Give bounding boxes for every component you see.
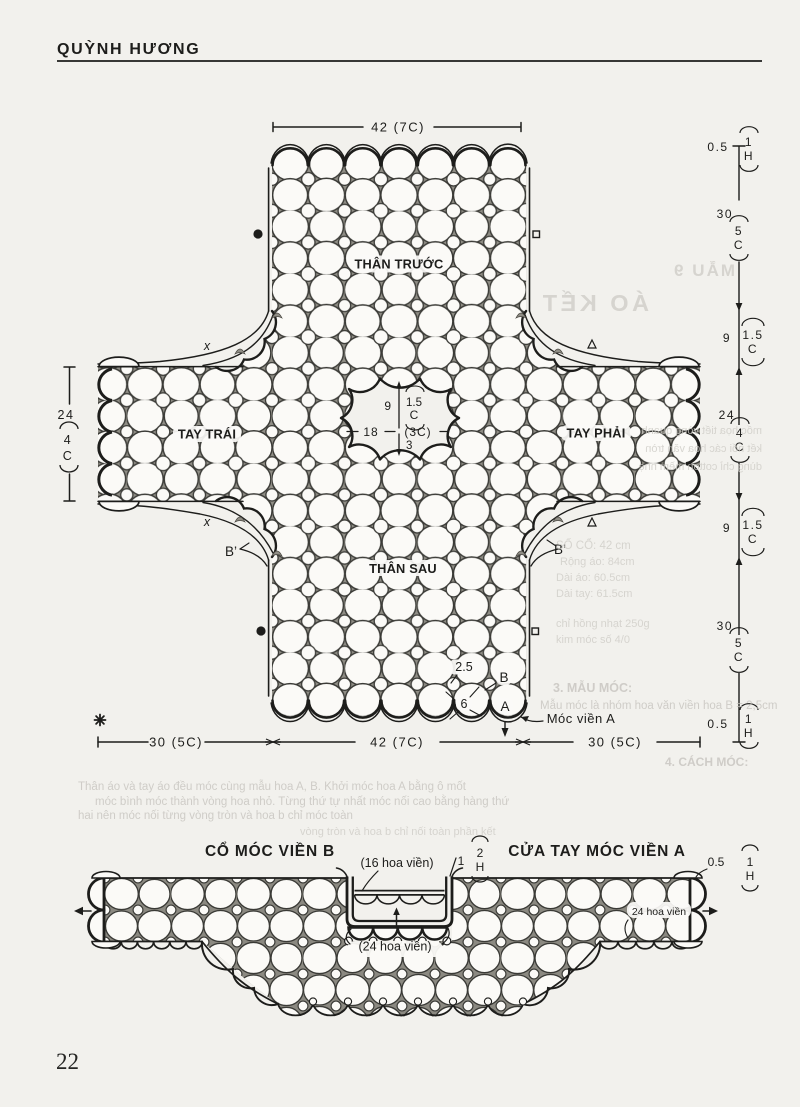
svg-text:H: H bbox=[746, 869, 755, 883]
svg-text:0.5: 0.5 bbox=[708, 855, 725, 869]
svg-text:H: H bbox=[744, 149, 754, 163]
svg-text:2: 2 bbox=[477, 846, 484, 860]
svg-text:(16 hoa viền): (16 hoa viền) bbox=[361, 856, 434, 870]
svg-text:Rộng áo: 84cm: Rộng áo: 84cm bbox=[560, 556, 635, 568]
svg-text:42 (7C): 42 (7C) bbox=[371, 120, 425, 135]
svg-text:1.5: 1.5 bbox=[742, 518, 763, 532]
svg-text:1: 1 bbox=[747, 855, 754, 869]
svg-text:(24 hoa viền): (24 hoa viền) bbox=[359, 940, 432, 954]
svg-text:9: 9 bbox=[723, 521, 731, 535]
svg-text:1: 1 bbox=[458, 854, 465, 868]
svg-text:(3C): (3C) bbox=[404, 425, 431, 439]
svg-text:B: B bbox=[499, 670, 508, 685]
svg-text:THÂN TRƯỚC: THÂN TRƯỚC bbox=[355, 257, 444, 272]
svg-text:dùng chỉ cotton mềm nhẹ: dùng chỉ cotton mềm nhẹ bbox=[638, 461, 762, 473]
svg-text:0.5: 0.5 bbox=[707, 140, 728, 154]
svg-text:1: 1 bbox=[745, 712, 753, 726]
svg-text:ÁO KẾT: ÁO KẾT bbox=[539, 289, 649, 316]
svg-text:mốc họa tiết vòng quanh: mốc họa tiết vòng quanh bbox=[642, 425, 762, 437]
svg-text:24: 24 bbox=[58, 408, 75, 422]
svg-text:42 (7C): 42 (7C) bbox=[370, 735, 424, 750]
svg-text:kết nối các hoa văn tròn: kết nối các hoa văn tròn bbox=[645, 443, 762, 455]
svg-text:Móc viền A: Móc viền A bbox=[547, 711, 616, 726]
svg-text:SỐ CỔ: 42 cm: SỐ CỔ: 42 cm bbox=[556, 538, 631, 552]
svg-text:9: 9 bbox=[723, 331, 731, 345]
svg-text:Dài tay: 61.5cm: Dài tay: 61.5cm bbox=[556, 588, 632, 600]
svg-text:C: C bbox=[748, 342, 758, 356]
svg-text:móc bình móc thành vòng hoa nh: móc bình móc thành vòng hoa nhỏ. Từng th… bbox=[95, 795, 509, 808]
svg-text:hai nên móc nối từng vòng tròn: hai nên móc nối từng vòng tròn và hoa b … bbox=[78, 810, 353, 822]
svg-text:18: 18 bbox=[363, 425, 378, 439]
svg-text:Thân áo và tay áo đều móc cùng: Thân áo và tay áo đều móc cùng mẫu hoa A… bbox=[78, 780, 467, 793]
svg-text:9: 9 bbox=[384, 399, 391, 413]
svg-text:24 hoa viền: 24 hoa viền bbox=[632, 906, 686, 918]
svg-text:A: A bbox=[500, 699, 509, 714]
svg-text:H: H bbox=[744, 726, 754, 740]
svg-text:4. CÁCH MÓC:: 4. CÁCH MÓC: bbox=[665, 754, 748, 769]
svg-text:C: C bbox=[410, 408, 419, 422]
svg-text:2.5: 2.5 bbox=[455, 660, 472, 674]
svg-text:CỬA TAY MÓC VIỀN A: CỬA TAY MÓC VIỀN A bbox=[508, 842, 685, 860]
svg-text:x: x bbox=[203, 339, 211, 353]
svg-text:B’: B’ bbox=[225, 544, 237, 559]
svg-text:vòng tròn và hoa b chỉ nối toà: vòng tròn và hoa b chỉ nối toàn phần kết bbox=[300, 826, 496, 838]
svg-text:TAY TRÁI: TAY TRÁI bbox=[178, 427, 236, 442]
svg-text:4: 4 bbox=[64, 433, 72, 447]
svg-text:TAY PHẢI: TAY PHẢI bbox=[567, 426, 626, 441]
svg-text:1: 1 bbox=[745, 135, 753, 149]
svg-text:0.5: 0.5 bbox=[707, 717, 728, 731]
svg-text:Dài áo: 60.5cm: Dài áo: 60.5cm bbox=[556, 572, 630, 584]
svg-text:MẪU 9: MẪU 9 bbox=[672, 261, 735, 280]
svg-text:H: H bbox=[476, 860, 485, 874]
svg-text:C: C bbox=[734, 650, 744, 664]
svg-text:QUỲNH HƯƠNG: QUỲNH HƯƠNG bbox=[57, 39, 200, 58]
svg-text:Mẫu móc là nhóm hoa văn viền h: Mẫu móc là nhóm hoa văn viền hoa B = 2,5… bbox=[540, 699, 777, 712]
svg-text:x: x bbox=[203, 515, 211, 529]
svg-text:C: C bbox=[748, 532, 758, 546]
svg-text:kim móc số 4/0: kim móc số 4/0 bbox=[556, 634, 630, 646]
svg-text:1.5: 1.5 bbox=[742, 328, 763, 342]
svg-text:5: 5 bbox=[735, 636, 743, 650]
svg-text:3: 3 bbox=[406, 440, 412, 452]
svg-text:chỉ hồng nhạt 250g: chỉ hồng nhạt 250g bbox=[556, 618, 650, 630]
svg-text:THÂN SAU: THÂN SAU bbox=[369, 561, 437, 576]
svg-text:6: 6 bbox=[461, 697, 468, 711]
svg-text:C: C bbox=[63, 449, 74, 463]
svg-text:CỔ MÓC VIỀN B: CỔ MÓC VIỀN B bbox=[205, 842, 335, 860]
svg-text:3. MẪU MÓC:: 3. MẪU MÓC: bbox=[553, 680, 632, 695]
svg-text:5: 5 bbox=[735, 224, 743, 238]
svg-text:22: 22 bbox=[56, 1049, 79, 1074]
svg-text:30 (5C): 30 (5C) bbox=[588, 735, 642, 750]
svg-text:30 (5C): 30 (5C) bbox=[149, 735, 203, 750]
svg-text:C: C bbox=[734, 238, 744, 252]
